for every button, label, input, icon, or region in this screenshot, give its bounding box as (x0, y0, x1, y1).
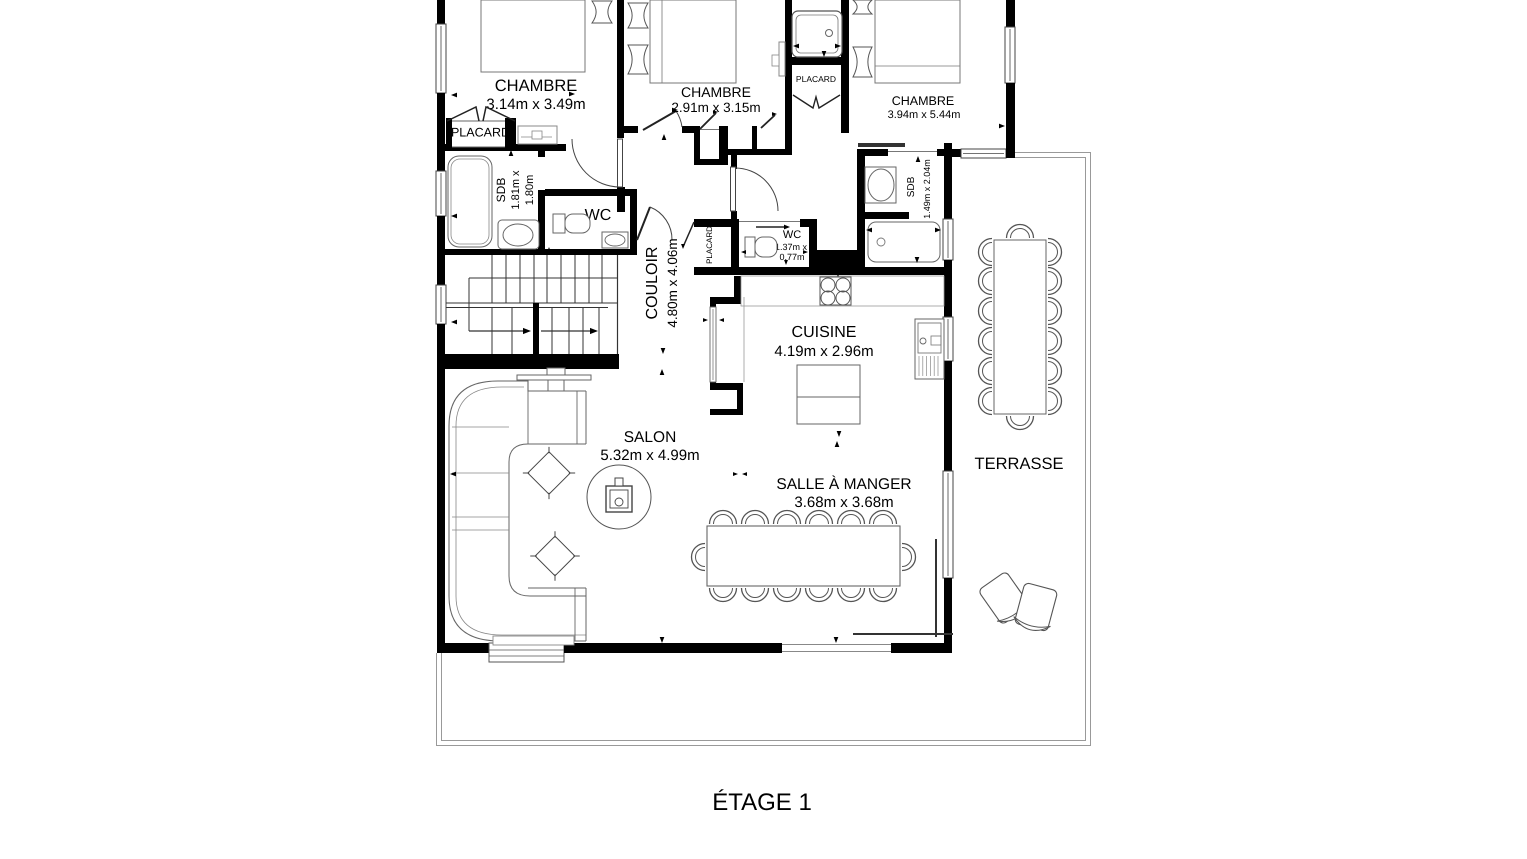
svg-text:SALON: SALON (624, 429, 677, 446)
svg-text:4.19m x 2.96m: 4.19m x 2.96m (774, 343, 873, 360)
svg-text:PLACARD: PLACARD (705, 226, 714, 264)
svg-text:3.14m x 3.49m: 3.14m x 3.49m (486, 96, 585, 113)
svg-text:0.77m: 0.77m (779, 252, 804, 262)
svg-text:1.81m x: 1.81m x (510, 170, 522, 210)
svg-text:PLACARD: PLACARD (451, 126, 510, 140)
svg-text:CHAMBRE: CHAMBRE (495, 77, 578, 95)
svg-text:SALLE À MANGER: SALLE À MANGER (776, 475, 911, 493)
svg-text:SDB: SDB (494, 178, 508, 203)
svg-text:CUISINE: CUISINE (792, 324, 857, 341)
svg-text:WC: WC (783, 229, 801, 241)
svg-text:5.32m x 4.99m: 5.32m x 4.99m (600, 447, 699, 464)
svg-text:CHAMBRE: CHAMBRE (892, 94, 955, 108)
svg-text:TERRASSE: TERRASSE (975, 455, 1064, 473)
svg-text:1.49m x 2.04m: 1.49m x 2.04m (922, 159, 932, 219)
svg-text:CHAMBRE: CHAMBRE (681, 84, 751, 100)
svg-text:4.80m x 4.06m: 4.80m x 4.06m (665, 238, 680, 327)
svg-text:3.68m x 3.68m: 3.68m x 3.68m (794, 494, 893, 511)
svg-text:3.94m x 5.44m: 3.94m x 5.44m (888, 109, 961, 121)
svg-text:SDB: SDB (906, 176, 917, 197)
svg-text:1.37m x: 1.37m x (775, 242, 808, 252)
svg-text:1.80m: 1.80m (524, 175, 536, 206)
svg-text:COULOIR: COULOIR (644, 247, 661, 320)
svg-text:PLACARD: PLACARD (796, 74, 836, 84)
svg-text:ÉTAGE 1: ÉTAGE 1 (712, 789, 812, 816)
svg-text:2.91m x 3.15m: 2.91m x 3.15m (671, 100, 760, 115)
